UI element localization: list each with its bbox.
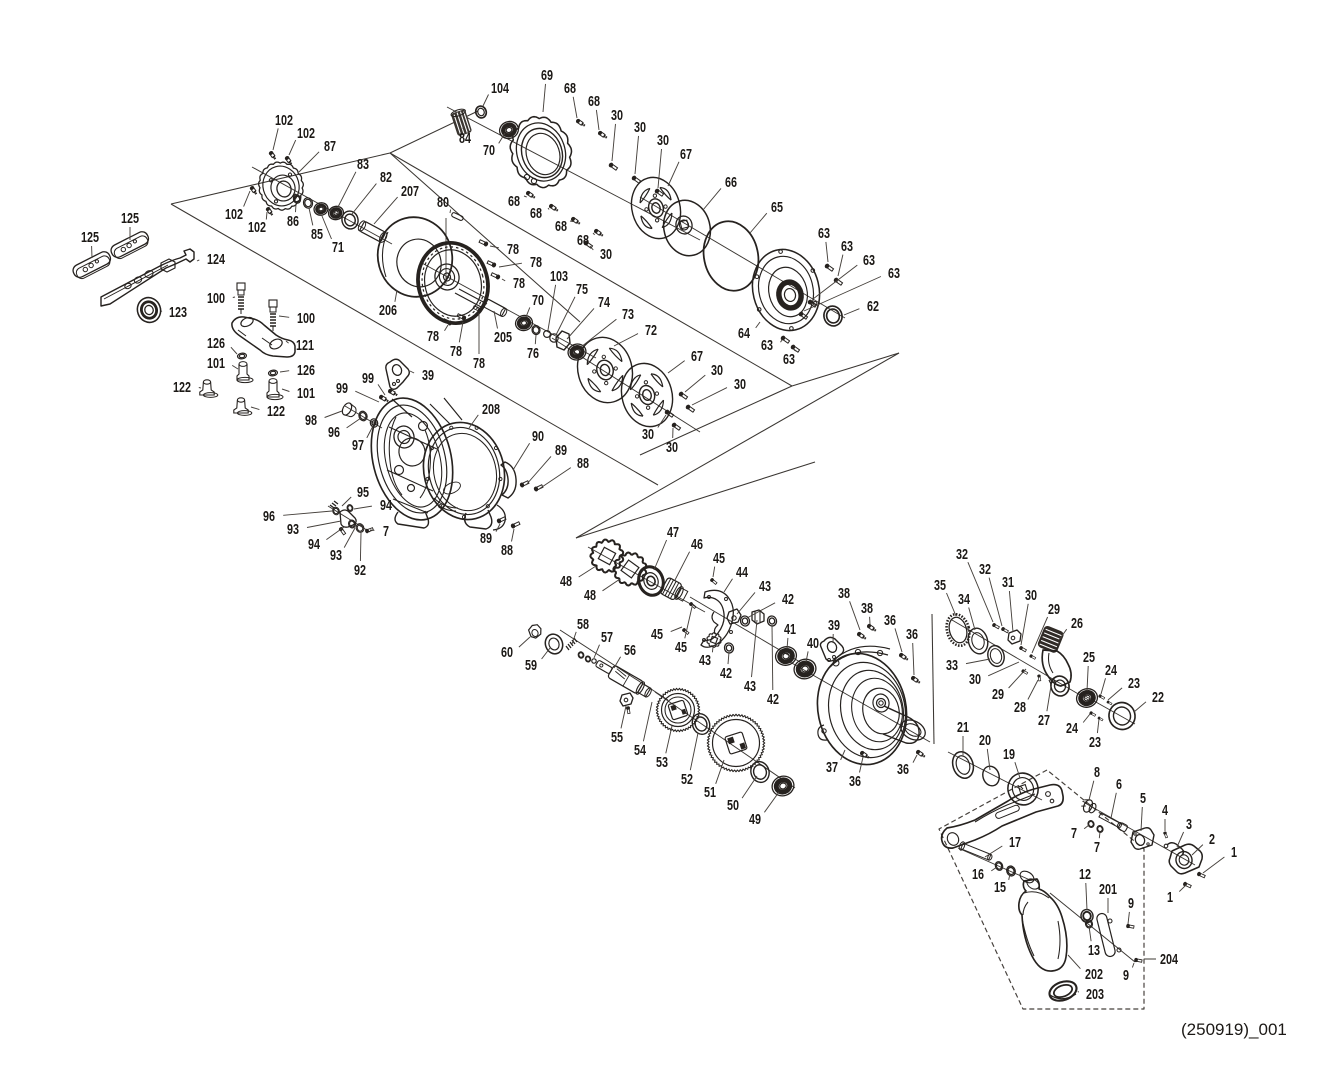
svg-text:3: 3 [1186, 816, 1192, 833]
svg-text:35: 35 [934, 577, 946, 594]
svg-text:30: 30 [657, 132, 669, 149]
svg-text:40: 40 [807, 635, 819, 652]
svg-text:47: 47 [667, 524, 679, 541]
svg-text:78: 78 [513, 275, 525, 292]
svg-text:82: 82 [380, 169, 392, 186]
svg-text:99: 99 [336, 380, 348, 397]
svg-text:102: 102 [297, 125, 315, 142]
svg-text:32: 32 [979, 561, 991, 578]
svg-text:70: 70 [483, 142, 495, 159]
svg-text:97: 97 [352, 437, 364, 454]
svg-text:37: 37 [826, 759, 838, 776]
svg-text:88: 88 [501, 542, 513, 559]
svg-text:122: 122 [267, 403, 285, 420]
svg-text:73: 73 [622, 306, 634, 323]
svg-text:36: 36 [849, 773, 861, 790]
svg-text:122: 122 [173, 379, 191, 396]
svg-text:17: 17 [1009, 834, 1021, 851]
svg-text:30: 30 [611, 107, 623, 124]
svg-text:27: 27 [1038, 712, 1050, 729]
svg-text:83: 83 [357, 156, 369, 173]
svg-text:93: 93 [330, 547, 342, 564]
svg-text:78: 78 [450, 343, 462, 360]
svg-text:33: 33 [946, 657, 958, 674]
svg-text:30: 30 [969, 671, 981, 688]
svg-text:30: 30 [711, 362, 723, 379]
svg-text:43: 43 [699, 652, 711, 669]
svg-text:93: 93 [287, 521, 299, 538]
svg-text:104: 104 [491, 80, 509, 97]
svg-text:94: 94 [308, 536, 320, 553]
svg-text:60: 60 [501, 644, 513, 661]
svg-text:43: 43 [744, 678, 756, 695]
svg-text:96: 96 [328, 424, 340, 441]
svg-text:68: 68 [564, 80, 576, 97]
svg-text:71: 71 [332, 239, 344, 256]
svg-text:201: 201 [1099, 881, 1117, 898]
svg-text:42: 42 [782, 591, 794, 608]
svg-text:24: 24 [1105, 662, 1117, 679]
svg-text:16: 16 [972, 866, 984, 883]
svg-text:204: 204 [1160, 951, 1178, 968]
svg-text:22: 22 [1152, 689, 1164, 706]
svg-text:205: 205 [494, 329, 512, 346]
svg-text:102: 102 [248, 219, 266, 236]
svg-text:56: 56 [624, 642, 636, 659]
svg-text:78: 78 [507, 241, 519, 258]
svg-text:99: 99 [362, 370, 374, 387]
svg-text:57: 57 [601, 629, 613, 646]
svg-text:125: 125 [121, 210, 139, 227]
svg-text:54: 54 [634, 742, 646, 759]
svg-text:68: 68 [530, 205, 542, 222]
svg-text:19: 19 [1003, 746, 1015, 763]
svg-text:63: 63 [761, 337, 773, 354]
svg-text:74: 74 [598, 294, 610, 311]
svg-text:23: 23 [1089, 734, 1101, 751]
svg-text:123: 123 [169, 304, 187, 321]
svg-text:5: 5 [1140, 790, 1146, 807]
svg-text:1: 1 [1167, 889, 1173, 906]
svg-text:43: 43 [759, 578, 771, 595]
svg-text:95: 95 [357, 484, 369, 501]
svg-text:59: 59 [525, 657, 537, 674]
svg-text:90: 90 [532, 428, 544, 445]
svg-text:49: 49 [749, 811, 761, 828]
svg-text:70: 70 [532, 292, 544, 309]
svg-text:68: 68 [588, 93, 600, 110]
svg-text:80: 80 [437, 194, 449, 211]
svg-text:9: 9 [1123, 967, 1129, 984]
svg-text:7: 7 [1071, 825, 1077, 842]
svg-text:29: 29 [1048, 601, 1060, 618]
svg-text:89: 89 [555, 442, 567, 459]
svg-text:92: 92 [354, 562, 366, 579]
svg-text:63: 63 [888, 265, 900, 282]
svg-text:63: 63 [841, 238, 853, 255]
svg-text:86: 86 [287, 213, 299, 230]
svg-text:36: 36 [897, 761, 909, 778]
svg-text:26: 26 [1071, 615, 1083, 632]
svg-text:28: 28 [1014, 699, 1026, 716]
svg-text:103: 103 [550, 268, 568, 285]
svg-text:76: 76 [527, 345, 539, 362]
svg-text:6: 6 [1116, 776, 1122, 793]
svg-text:62: 62 [867, 298, 879, 315]
svg-text:58: 58 [577, 616, 589, 633]
svg-text:52: 52 [681, 771, 693, 788]
svg-text:20: 20 [979, 732, 991, 749]
svg-text:21: 21 [957, 719, 969, 736]
svg-text:100: 100 [207, 290, 225, 307]
svg-text:42: 42 [767, 691, 779, 708]
svg-text:68: 68 [508, 193, 520, 210]
svg-text:89: 89 [480, 530, 492, 547]
svg-text:68: 68 [555, 218, 567, 235]
svg-text:25: 25 [1083, 649, 1095, 666]
svg-text:78: 78 [427, 328, 439, 345]
svg-text:9: 9 [1128, 895, 1134, 912]
svg-text:203: 203 [1086, 986, 1104, 1003]
svg-text:34: 34 [958, 591, 970, 608]
svg-text:100: 100 [297, 310, 315, 327]
svg-text:46: 46 [691, 536, 703, 553]
svg-text:38: 38 [838, 585, 850, 602]
svg-text:207: 207 [401, 183, 419, 200]
svg-text:48: 48 [584, 587, 596, 604]
svg-text:67: 67 [680, 146, 692, 163]
svg-text:41: 41 [784, 621, 796, 638]
svg-text:63: 63 [783, 351, 795, 368]
svg-text:85: 85 [311, 226, 323, 243]
svg-text:30: 30 [666, 439, 678, 456]
svg-text:15: 15 [994, 879, 1006, 896]
svg-text:2: 2 [1209, 831, 1215, 848]
svg-text:30: 30 [734, 376, 746, 393]
svg-text:29: 29 [992, 686, 1004, 703]
svg-text:98: 98 [305, 412, 317, 429]
svg-text:36: 36 [884, 612, 896, 629]
svg-text:63: 63 [863, 252, 875, 269]
svg-text:39: 39 [422, 367, 434, 384]
svg-text:65: 65 [771, 199, 783, 216]
svg-text:202: 202 [1085, 966, 1103, 983]
svg-text:69: 69 [541, 67, 553, 84]
svg-text:32: 32 [956, 546, 968, 563]
svg-text:50: 50 [727, 797, 739, 814]
svg-text:23: 23 [1128, 675, 1140, 692]
svg-text:53: 53 [656, 754, 668, 771]
svg-text:(250919)_001: (250919)_001 [1181, 1020, 1287, 1039]
svg-text:101: 101 [297, 385, 315, 402]
svg-text:4: 4 [1162, 802, 1168, 819]
svg-text:30: 30 [600, 246, 612, 263]
svg-text:102: 102 [225, 206, 243, 223]
svg-text:72: 72 [645, 322, 657, 339]
svg-text:67: 67 [691, 348, 703, 365]
svg-text:124: 124 [207, 251, 225, 268]
svg-text:84: 84 [459, 130, 471, 147]
svg-text:30: 30 [1025, 587, 1037, 604]
svg-text:7: 7 [383, 523, 389, 540]
svg-text:87: 87 [324, 138, 336, 155]
svg-text:66: 66 [725, 174, 737, 191]
svg-text:96: 96 [263, 508, 275, 525]
svg-text:126: 126 [207, 335, 225, 352]
svg-text:30: 30 [642, 426, 654, 443]
svg-text:45: 45 [651, 626, 663, 643]
svg-text:75: 75 [576, 281, 588, 298]
svg-text:39: 39 [828, 617, 840, 634]
svg-text:121: 121 [296, 337, 314, 354]
svg-text:125: 125 [81, 229, 99, 246]
svg-text:1: 1 [1231, 844, 1237, 861]
svg-text:94: 94 [380, 497, 392, 514]
svg-text:55: 55 [611, 729, 623, 746]
svg-text:12: 12 [1079, 866, 1091, 883]
svg-text:63: 63 [818, 225, 830, 242]
svg-text:68: 68 [577, 232, 589, 249]
svg-text:64: 64 [738, 325, 750, 342]
svg-text:36: 36 [906, 626, 918, 643]
svg-text:42: 42 [720, 665, 732, 682]
svg-text:51: 51 [704, 784, 716, 801]
svg-text:101: 101 [207, 355, 225, 372]
svg-text:48: 48 [560, 573, 572, 590]
svg-text:88: 88 [577, 455, 589, 472]
svg-text:7: 7 [1094, 839, 1100, 856]
svg-text:102: 102 [275, 112, 293, 129]
svg-text:45: 45 [675, 639, 687, 656]
svg-text:13: 13 [1088, 942, 1100, 959]
svg-text:8: 8 [1094, 764, 1100, 781]
svg-text:24: 24 [1066, 720, 1078, 737]
svg-text:38: 38 [861, 600, 873, 617]
svg-text:45: 45 [713, 550, 725, 567]
svg-text:44: 44 [736, 564, 748, 581]
svg-text:126: 126 [297, 362, 315, 379]
svg-text:78: 78 [530, 254, 542, 271]
svg-text:31: 31 [1002, 574, 1014, 591]
svg-text:208: 208 [482, 401, 500, 418]
svg-text:30: 30 [634, 119, 646, 136]
svg-text:78: 78 [473, 355, 485, 372]
svg-text:206: 206 [379, 302, 397, 319]
